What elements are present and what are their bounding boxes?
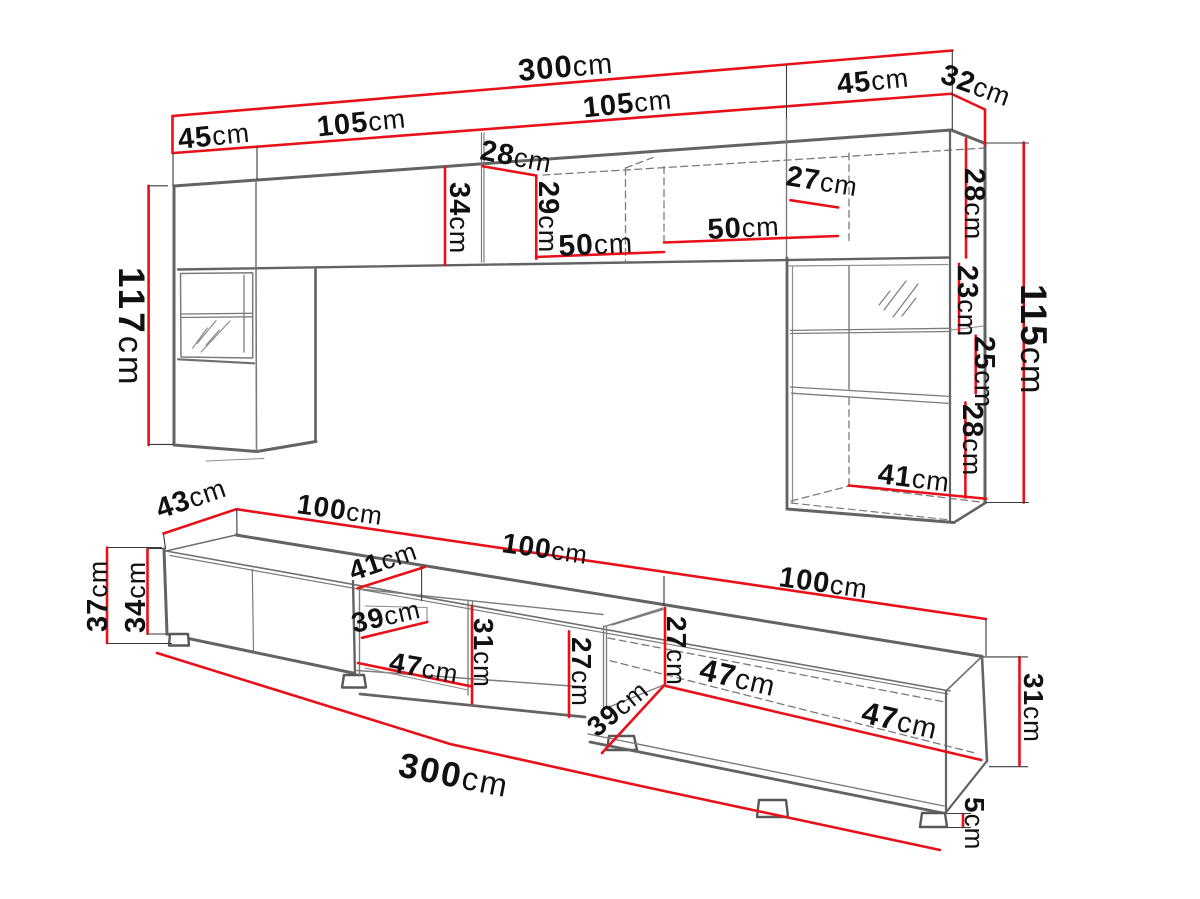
svg-text:27cm: 27cm xyxy=(566,637,597,707)
svg-text:5cm: 5cm xyxy=(959,797,990,850)
svg-text:50cm: 50cm xyxy=(558,226,634,263)
svg-text:115cm: 115cm xyxy=(1013,284,1054,395)
svg-text:31cm: 31cm xyxy=(1018,673,1049,743)
svg-text:27cm: 27cm xyxy=(661,616,692,686)
svg-text:34cm: 34cm xyxy=(120,561,152,633)
svg-text:28cm: 28cm xyxy=(958,168,990,240)
svg-text:37cm: 37cm xyxy=(82,560,114,632)
svg-text:117cm: 117cm xyxy=(111,267,152,388)
svg-text:50cm: 50cm xyxy=(707,210,781,246)
svg-text:25cm: 25cm xyxy=(968,336,1000,408)
svg-text:34cm: 34cm xyxy=(443,182,475,254)
svg-text:31cm: 31cm xyxy=(468,618,499,688)
svg-text:28cm: 28cm xyxy=(956,404,988,476)
svg-text:23cm: 23cm xyxy=(951,265,983,337)
